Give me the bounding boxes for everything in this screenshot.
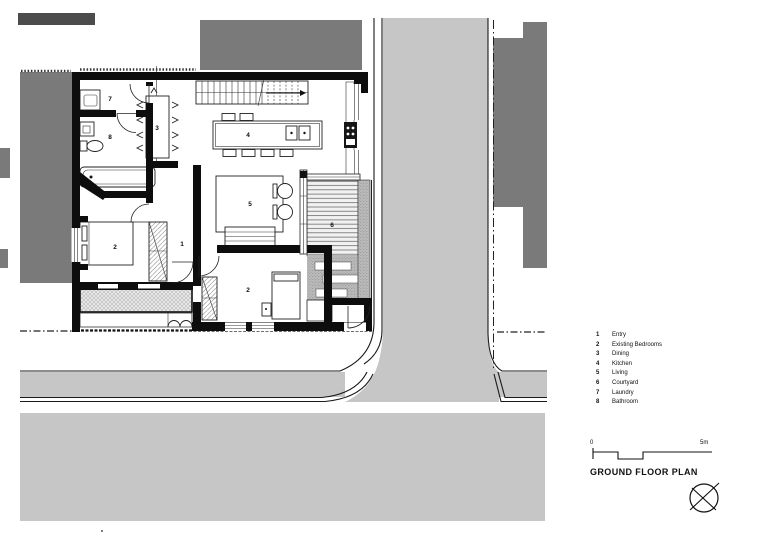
legend-num: 2 (596, 341, 612, 351)
neighbor-west-tab-2 (0, 249, 8, 268)
glazed-wall-courtyard-north (307, 174, 360, 180)
legend-num: 5 (596, 369, 612, 379)
footpath-east (497, 372, 547, 397)
front-path (80, 313, 192, 327)
north-symbol (690, 483, 719, 512)
legend-label: Existing Bedrooms (612, 341, 662, 351)
scale-start-label: 0 (590, 440, 593, 446)
neighbor-west-building (20, 72, 72, 283)
legend-num: 7 (596, 389, 612, 399)
legend-num: 6 (596, 379, 612, 389)
neighbor-north-building (200, 20, 362, 70)
armchair-1 (273, 184, 293, 199)
neighbor-east-building-strip (523, 22, 547, 268)
drawing-title: GROUND FLOOR PLAN (590, 467, 698, 477)
legend-item-entry: 1 Entry (596, 331, 716, 341)
neighbor-east-building-wing (493, 38, 523, 207)
legend-num: 4 (596, 360, 612, 370)
dot-artifact (101, 530, 103, 532)
window-south-2 (252, 323, 274, 332)
scale-end-label: 5m (700, 440, 708, 446)
legend-label: Courtyard (612, 379, 638, 389)
neighbor-north-west-bar (18, 13, 95, 25)
east-fence-strip (358, 180, 370, 302)
legend-item-bathroom: 8 Bathroom (596, 398, 716, 408)
gap-hall-west (193, 286, 201, 302)
label-entry: 1 (180, 241, 184, 248)
legend-item-laundry: 7 Laundry (596, 389, 716, 399)
sofa (225, 227, 275, 246)
legend-label: Laundry (612, 389, 634, 399)
bed-west (80, 222, 133, 265)
bathroom-basin (80, 122, 94, 136)
legend-label: Living (612, 369, 628, 379)
toilet (80, 141, 103, 152)
legend-item-dining: 3 Dining (596, 350, 716, 360)
house-plan: 7 8 3 4 5 6 1 2 2 (72, 66, 373, 332)
legend-item-existing-bedrooms: 2 Existing Bedrooms (596, 341, 716, 351)
glazed-wall-courtyard-west (300, 170, 307, 254)
laundry-fixtures (80, 90, 100, 110)
legend-label: Kitchen (612, 360, 632, 370)
room-legend: 1 Entry 2 Existing Bedrooms 3 Dining 4 K… (596, 331, 716, 408)
legend-item-living: 5 Living (596, 369, 716, 379)
label-courtyard: 6 (330, 222, 334, 229)
armchair-2 (273, 205, 293, 220)
legend-label: Dining (612, 350, 629, 360)
label-dining: 3 (155, 125, 159, 132)
neighbor-west-tab-1 (0, 148, 10, 178)
label-living: 5 (248, 201, 252, 208)
staircase (196, 79, 308, 106)
front-planter (80, 288, 192, 312)
street-road (20, 413, 545, 521)
legend-num: 1 (596, 331, 612, 341)
site-plan-drawing: 7 8 3 4 5 6 1 2 2 (0, 0, 768, 543)
legend-item-kitchen: 4 Kitchen (596, 360, 716, 370)
scale-bar (593, 448, 712, 459)
legend-num: 3 (596, 350, 612, 360)
label-kitchen: 4 (246, 132, 250, 139)
bed-south (272, 272, 300, 319)
label-bedroom-west: 2 (113, 244, 117, 251)
legend-num: 8 (596, 398, 612, 408)
footpath-west (20, 372, 345, 397)
courtyard-deck (307, 181, 358, 256)
label-laundry: 7 (108, 96, 112, 103)
legend-item-courtyard: 6 Courtyard (596, 379, 716, 389)
label-bedroom-south: 2 (246, 287, 250, 294)
window-west-bedroom (72, 228, 81, 262)
legend-label: Entry (612, 331, 626, 341)
legend-label: Bathroom (612, 398, 638, 408)
window-south-1 (225, 323, 246, 332)
label-bathroom: 8 (108, 134, 112, 141)
floor-plan-sheet: 7 8 3 4 5 6 1 2 2 1 Entry 2 Existing Bed… (0, 0, 768, 543)
